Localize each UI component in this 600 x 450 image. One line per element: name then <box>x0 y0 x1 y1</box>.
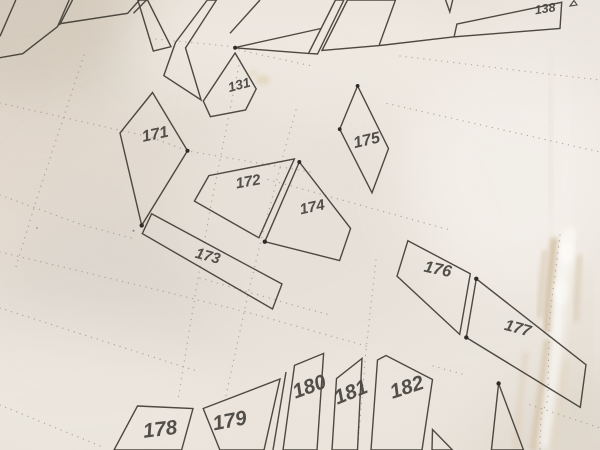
svg-text:178: 178 <box>142 416 179 443</box>
